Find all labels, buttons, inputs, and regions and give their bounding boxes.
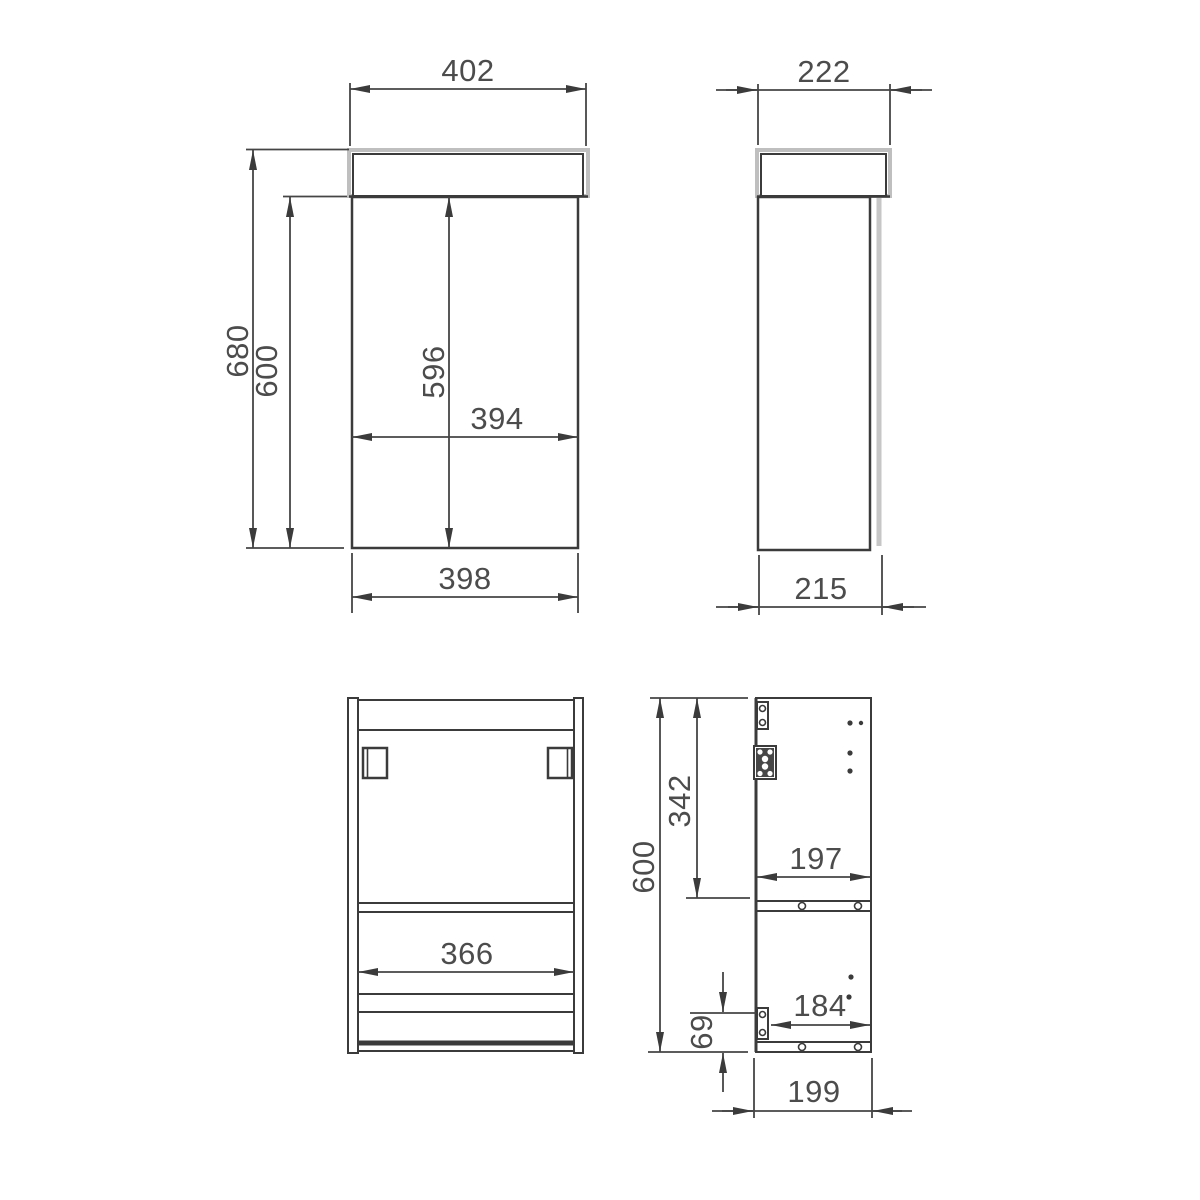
screw-hole bbox=[855, 903, 862, 910]
front-view: 402 680 600 596 394 398 bbox=[220, 53, 588, 613]
screw-hole bbox=[760, 706, 766, 712]
drill-dot bbox=[859, 721, 863, 725]
dim-label-shelf-width: 197 bbox=[789, 841, 842, 876]
back-view: 366 bbox=[348, 698, 583, 1053]
hinge-mount-hole bbox=[767, 771, 772, 776]
screw-hole bbox=[760, 1012, 766, 1018]
dim-label-front-mid-width: 394 bbox=[470, 401, 523, 436]
dim-label-lower-width: 184 bbox=[793, 988, 846, 1023]
dim-label-section-bottom-depth: 199 bbox=[787, 1074, 840, 1109]
drill-dot bbox=[847, 768, 852, 773]
back-right-side-panel bbox=[574, 698, 583, 1053]
front-carcass bbox=[352, 197, 578, 548]
hinge-mount-hole bbox=[757, 771, 762, 776]
hinge-mount-hole bbox=[767, 749, 772, 754]
back-left-side-panel bbox=[348, 698, 358, 1053]
technical-drawing-canvas: 402 680 600 596 394 398 222 bbox=[0, 0, 1200, 1200]
drill-dot bbox=[846, 994, 851, 999]
hinge-mount-hole bbox=[762, 756, 768, 762]
hinge-mount-hole bbox=[762, 763, 768, 769]
side-worktop bbox=[761, 154, 886, 196]
drill-dot bbox=[847, 720, 852, 725]
screw-hole bbox=[799, 1044, 806, 1051]
dim-label-front-carcass-height: 600 bbox=[249, 344, 284, 397]
drawing-svg: 402 680 600 596 394 398 222 bbox=[0, 0, 1200, 1200]
screw-hole bbox=[760, 1030, 766, 1036]
back-right-wall-bracket bbox=[548, 748, 572, 778]
dim-label-side-top-depth: 222 bbox=[797, 54, 850, 89]
screw-hole bbox=[855, 1044, 862, 1051]
dim-label-plinth-height: 69 bbox=[684, 1014, 719, 1049]
dim-label-back-inner-width: 366 bbox=[440, 936, 493, 971]
dim-label-section-total-height: 600 bbox=[626, 840, 661, 893]
hinge-mount-hole bbox=[757, 749, 762, 754]
screw-hole bbox=[760, 720, 766, 726]
drill-dot bbox=[848, 974, 853, 979]
front-worktop bbox=[353, 154, 583, 196]
dim-label-upper-height: 342 bbox=[662, 774, 697, 827]
side-carcass bbox=[758, 197, 870, 550]
drill-dot bbox=[847, 750, 852, 755]
back-left-wall-bracket bbox=[363, 748, 387, 778]
side-view: 222 215 bbox=[716, 54, 932, 615]
dim-label-front-top-width: 402 bbox=[441, 53, 494, 88]
section-view: 600 342 197 69 184 199 bbox=[626, 698, 912, 1118]
dim-label-front-bottom-width: 398 bbox=[438, 561, 491, 596]
dim-label-front-door-height: 596 bbox=[416, 345, 451, 398]
screw-hole bbox=[799, 903, 806, 910]
dim-label-side-bottom-depth: 215 bbox=[794, 571, 847, 606]
